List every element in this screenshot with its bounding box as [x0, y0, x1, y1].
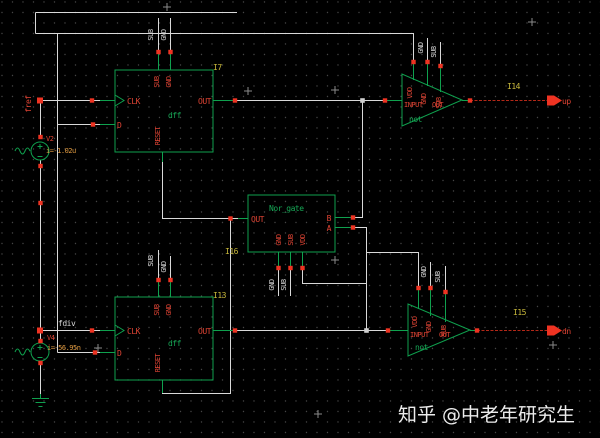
- pin-label: SUB: [287, 234, 295, 245]
- pin-label: OUT: [439, 331, 451, 339]
- net-label-sub: SUB: [147, 29, 155, 40]
- port-square-fref[interactable]: [37, 98, 43, 104]
- net-label-gnd: GND: [420, 266, 428, 277]
- pin-label: SUB: [153, 304, 161, 315]
- port-label-fdiv: fdiv: [58, 319, 76, 328]
- pin-label: INPUT: [404, 101, 424, 109]
- watermark: 知乎 @中老年研究生: [398, 404, 575, 426]
- pin-label: VDD: [411, 316, 419, 327]
- pin-label: VDD: [299, 234, 307, 245]
- pin-label: CLK: [127, 97, 141, 106]
- source-name: V2: [46, 135, 54, 143]
- net-label-gnd: GND: [268, 279, 276, 290]
- net-label-sub: SUB: [430, 46, 438, 57]
- pin-label: CLK: [127, 327, 141, 336]
- pin-label: SUB: [153, 76, 161, 87]
- net-label-gnd: GND: [160, 261, 168, 272]
- cell-name: not: [409, 115, 423, 124]
- instance-id: I13: [213, 291, 227, 300]
- net-label-sub: SUB: [434, 271, 442, 282]
- pin-label: GND: [165, 76, 173, 87]
- net-label-sub: SUB: [147, 255, 155, 266]
- pin-label: RESET: [154, 352, 162, 372]
- net-label-sub: SUB: [280, 279, 288, 290]
- pin-label: GND: [275, 234, 283, 245]
- source-annotation: i=-1.02u: [46, 147, 76, 155]
- cell-name: Nor_gate: [269, 204, 304, 213]
- pin-label: OUT: [198, 97, 212, 106]
- source-name: V4: [47, 334, 55, 342]
- pin-label: A: [327, 224, 332, 233]
- port-label-dn: dn: [562, 327, 571, 336]
- pin-label: OUT: [251, 215, 265, 224]
- pin-label: D: [117, 349, 122, 358]
- instance-id: I16: [225, 247, 239, 256]
- net-label-gnd: GND: [160, 29, 168, 40]
- pin-label: B: [327, 214, 332, 223]
- cell-name: dff: [168, 111, 182, 120]
- pin-label: D: [117, 121, 122, 130]
- pin-label: GND: [165, 304, 173, 315]
- port-square-fdiv[interactable]: [37, 328, 43, 334]
- instance-id: I14: [507, 82, 521, 91]
- pin-label: OUT: [198, 327, 212, 336]
- grid-dots: [0, 0, 600, 438]
- net-label-gnd: GND: [417, 42, 425, 53]
- pin-label: VDD: [406, 87, 414, 98]
- port-label-up: up: [562, 97, 571, 106]
- pin-label: INPUT: [410, 331, 430, 339]
- pin-label: OUT: [432, 101, 444, 109]
- instance-id: I15: [513, 308, 527, 317]
- schematic-canvas[interactable]: CLK D OUT SUB GND RESET dff I7 CLK D OUT…: [0, 0, 600, 438]
- source-annotation: i=-56.95n: [47, 344, 81, 352]
- port-label-fref: fref: [24, 95, 33, 113]
- cell-name: not: [415, 343, 429, 352]
- pin-label: RESET: [154, 125, 162, 145]
- instance-id: I7: [213, 63, 222, 72]
- cell-name: dff: [168, 339, 182, 348]
